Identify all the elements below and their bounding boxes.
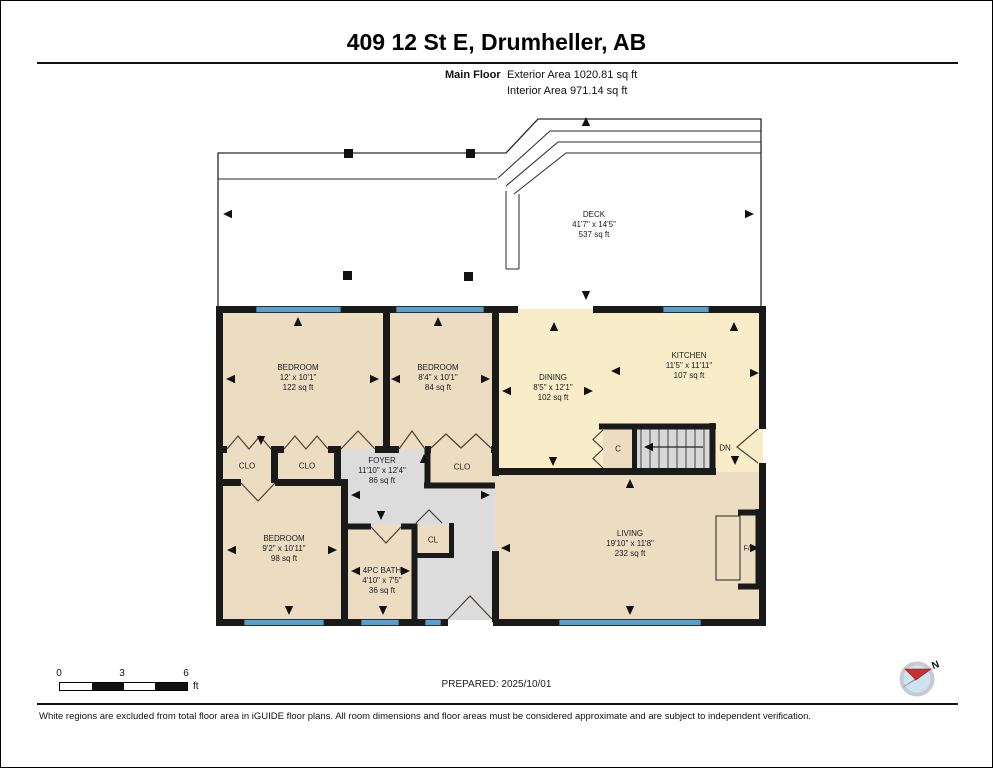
- window-hall: [425, 620, 441, 626]
- scale-tick-0: 0: [56, 668, 62, 679]
- room-label-living: LIVING19'10" x 11'8"232 sq ft: [560, 529, 700, 559]
- window-living: [559, 620, 701, 626]
- scale-tick-6: 6: [183, 668, 189, 679]
- label-closet1: CLO: [239, 462, 255, 471]
- label-stairs-down: DN: [719, 444, 731, 453]
- footer-disclaimer: White regions are excluded from total fl…: [39, 711, 811, 722]
- scale-tick-3: 3: [119, 668, 125, 679]
- footer-divider: [37, 703, 958, 705]
- window-bedroom2: [396, 307, 484, 313]
- floorplan-page: 409 12 St E, Drumheller, AB Main Floor E…: [0, 0, 993, 768]
- room-label-deck: DECK41'7" x 14'5"537 sq ft: [524, 210, 664, 240]
- room-label-bedroom1: BEDROOM12' x 10'1"122 sq ft: [228, 363, 368, 393]
- window-bath: [361, 620, 399, 626]
- room-label-dining: DINING8'5" x 12'1"102 sq ft: [483, 373, 623, 403]
- room-label-bath: 4PC BATH4'10" x 7'5"36 sq ft: [312, 566, 452, 596]
- label-closet-bath: CL: [428, 536, 438, 545]
- room-label-foyer: FOYER11'10" x 12'4"86 sq ft: [312, 456, 452, 486]
- prepared-date: PREPARED: 2025/10/01: [1, 679, 992, 690]
- deck-region: [218, 119, 761, 306]
- window-kitchen: [663, 307, 709, 313]
- label-closet2: CLO: [299, 462, 315, 471]
- label-fireplace: F/P: [744, 546, 755, 553]
- label-closet-bed2: CLO: [454, 463, 470, 472]
- room-label-bedroom3: BEDROOM9'2" x 10'11"98 sq ft: [214, 534, 354, 564]
- window-bedroom1: [256, 307, 341, 313]
- label-closet-stairs: C: [615, 445, 621, 454]
- window-bedroom3: [244, 620, 324, 626]
- room-label-kitchen: KITCHEN11'5" x 11'11"107 sq ft: [619, 351, 759, 381]
- stairs: [634, 424, 712, 470]
